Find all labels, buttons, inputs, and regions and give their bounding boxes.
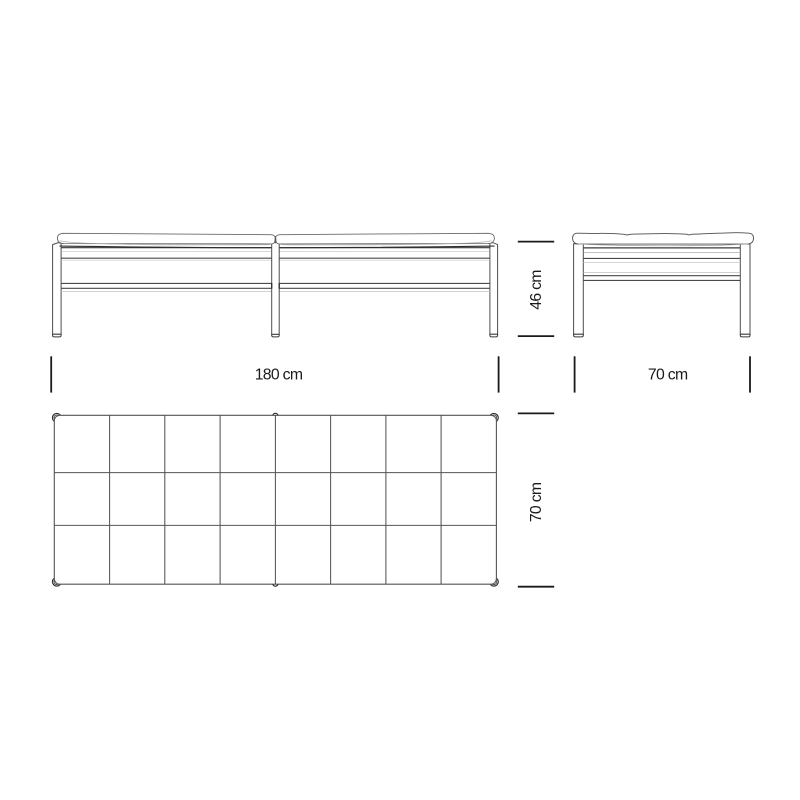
svg-text:180 cm: 180 cm <box>255 367 303 384</box>
svg-text:46 cm: 46 cm <box>528 270 545 310</box>
svg-text:70 cm: 70 cm <box>528 482 545 522</box>
svg-text:70 cm: 70 cm <box>648 367 688 384</box>
